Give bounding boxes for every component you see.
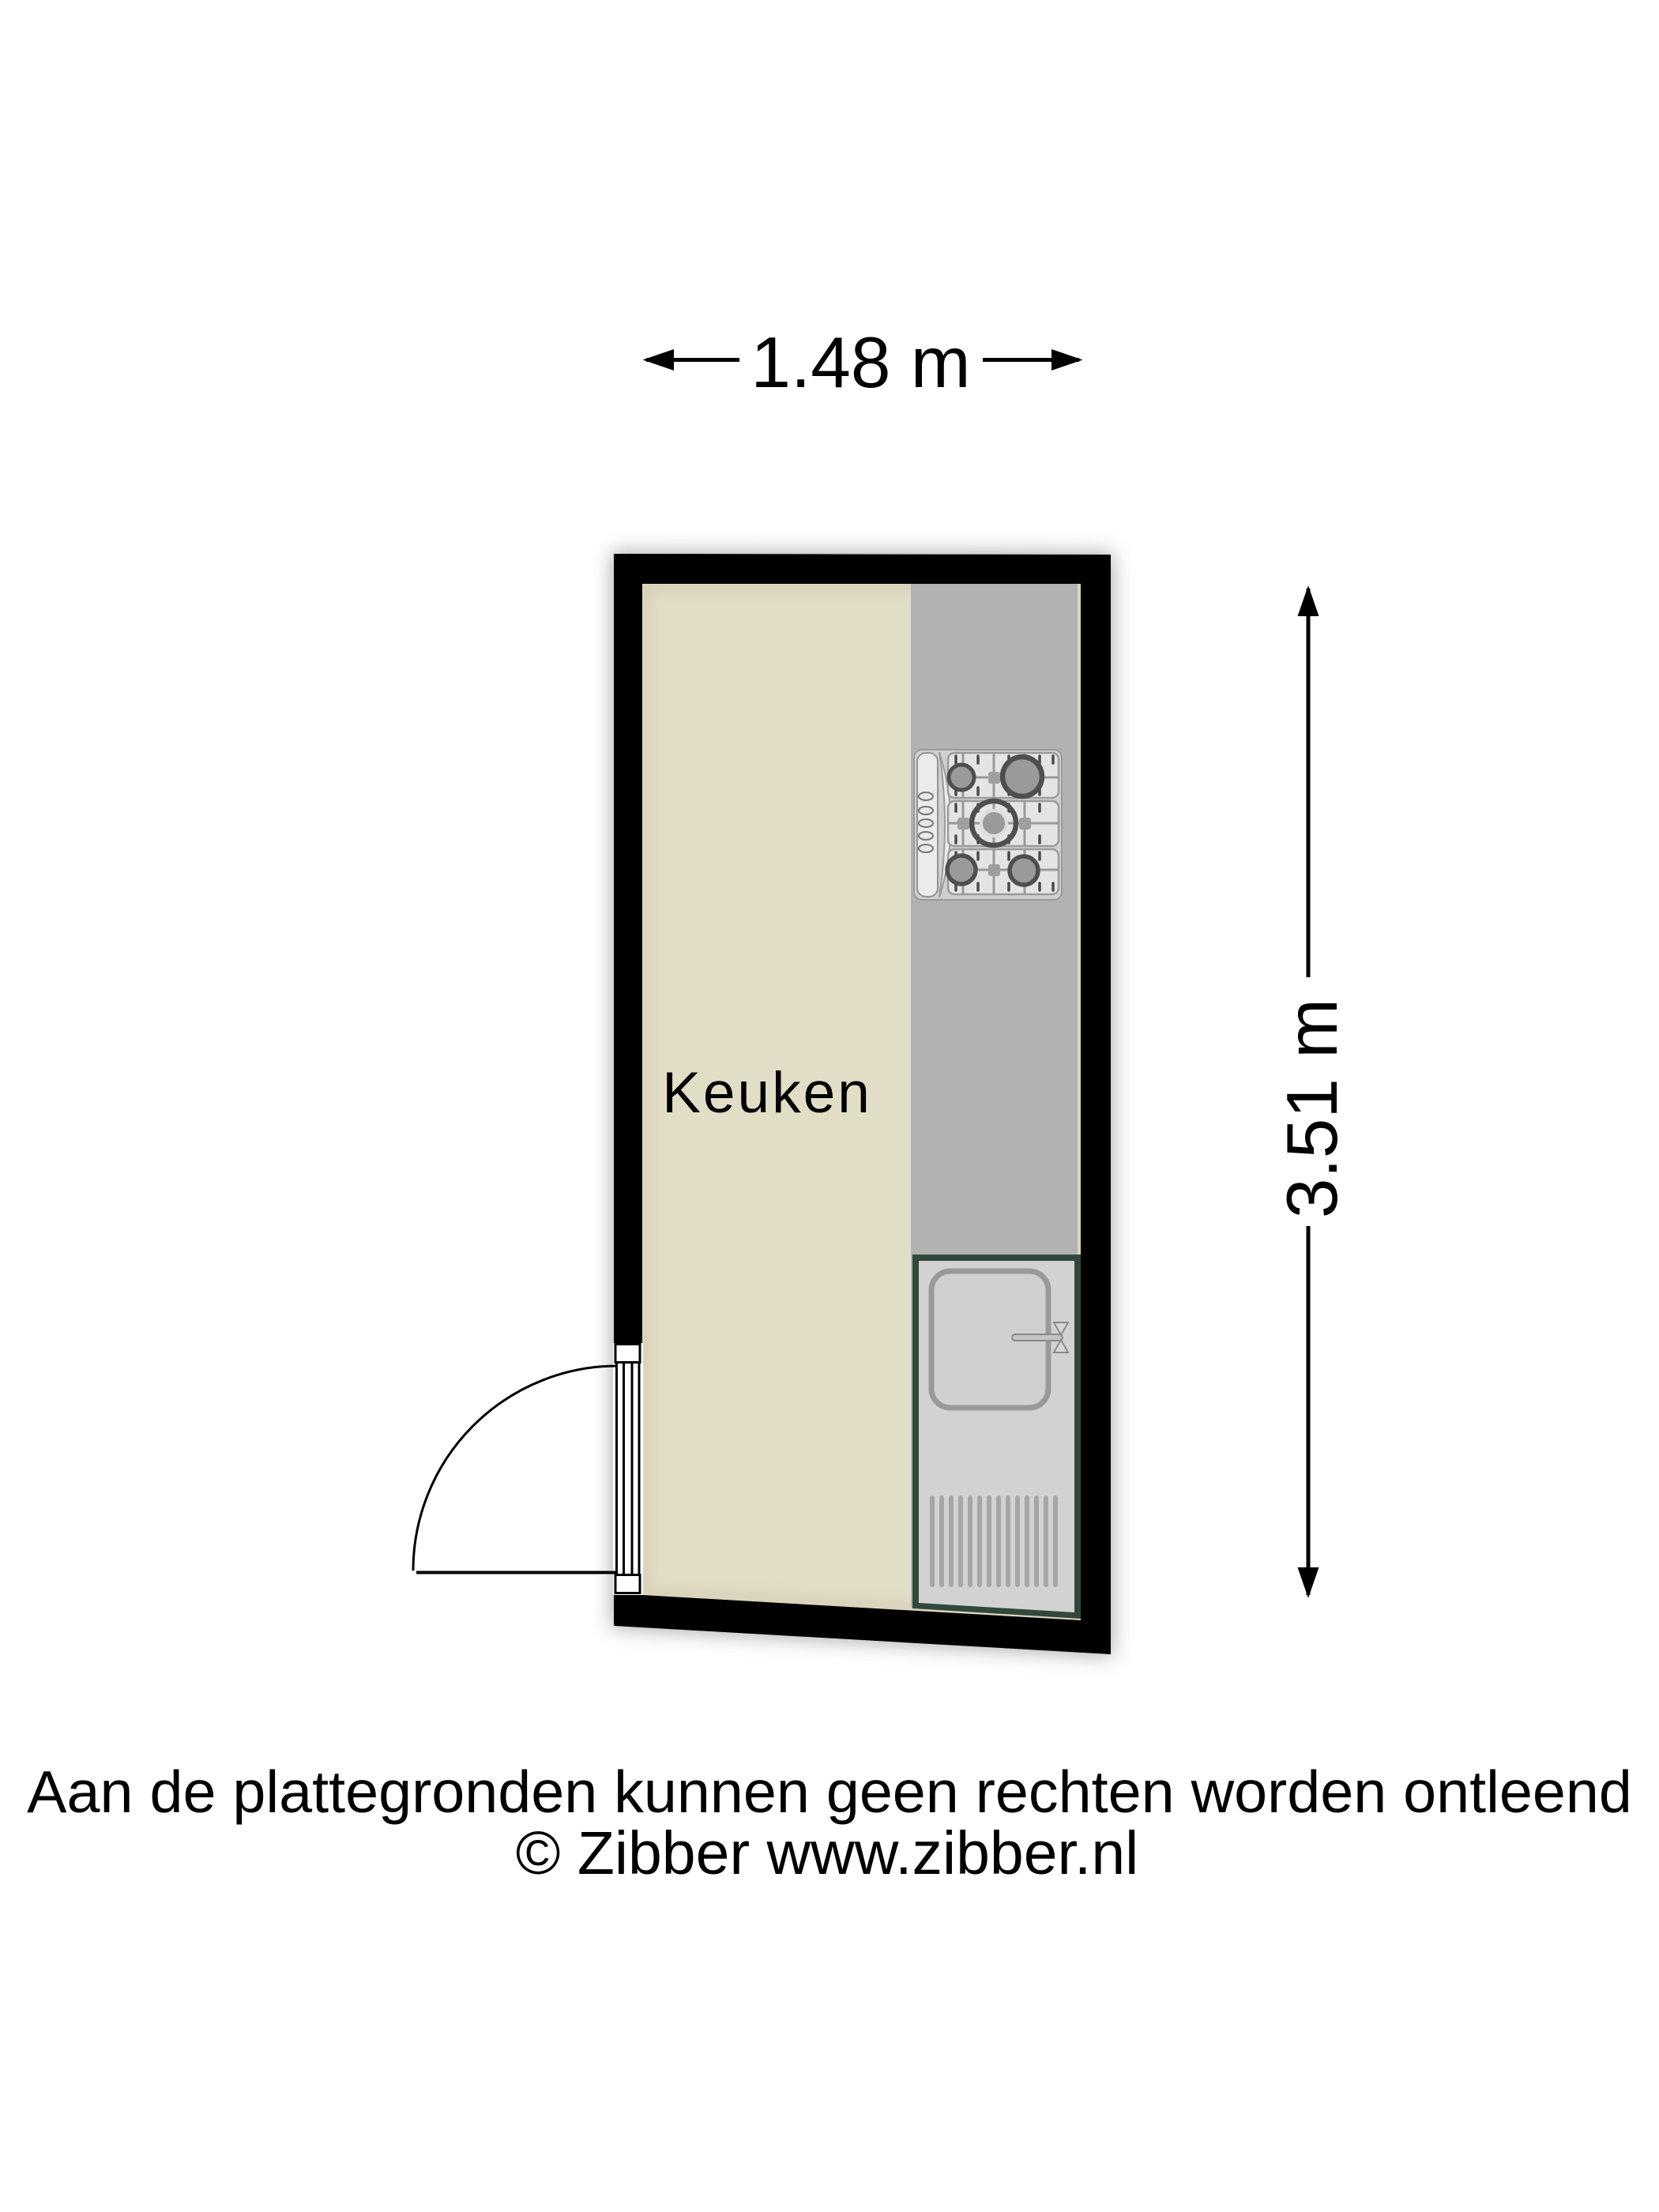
svg-text:1.48 m: 1.48 m <box>750 323 970 403</box>
svg-text:© Zibber www.zibber.nl: © Zibber www.zibber.nl <box>516 1819 1139 1887</box>
svg-text:3.51 m: 3.51 m <box>1273 999 1352 1218</box>
svg-text:Keuken: Keuken <box>662 1061 872 1125</box>
svg-text:Aan de plattegronden kunnen ge: Aan de plattegronden kunnen geen rechten… <box>27 1759 1632 1825</box>
